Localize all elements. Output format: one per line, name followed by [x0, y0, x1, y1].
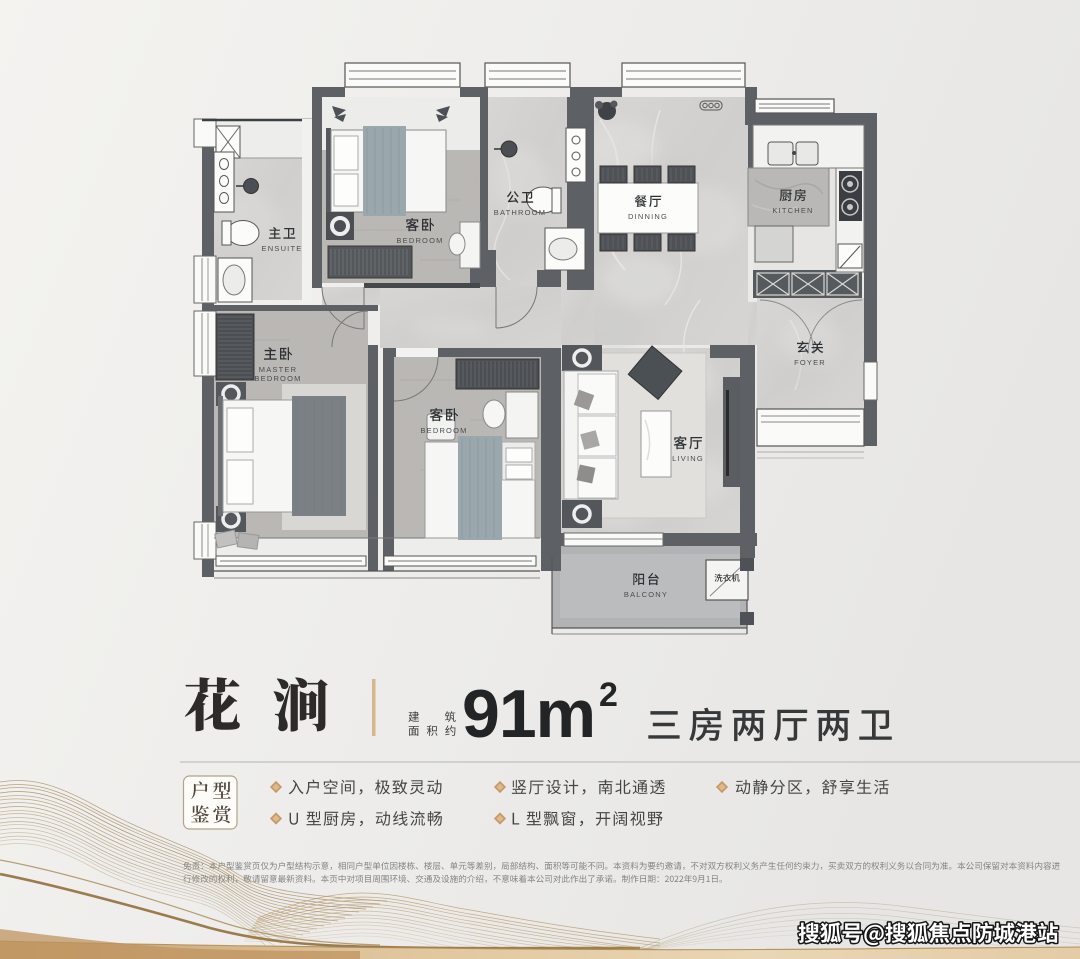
svg-text:BATHROOM: BATHROOM — [494, 208, 546, 217]
svg-text:BEDROOM: BEDROOM — [396, 236, 443, 245]
svg-text:ENSUITE: ENSUITE — [262, 244, 303, 253]
svg-text:BEDROOM: BEDROOM — [254, 374, 301, 383]
svg-text:KITCHEN: KITCHEN — [772, 206, 813, 215]
svg-text:DINNING: DINNING — [628, 212, 668, 221]
svg-text:BALCONY: BALCONY — [624, 590, 668, 599]
svg-text:MASTER: MASTER — [259, 365, 297, 374]
svg-text:BEDROOM: BEDROOM — [420, 426, 467, 435]
svg-text:FOYER: FOYER — [794, 358, 826, 367]
svg-text:LIVING: LIVING — [672, 454, 704, 463]
svg-text:91m: 91m — [462, 676, 595, 752]
svg-text:2: 2 — [599, 676, 618, 714]
